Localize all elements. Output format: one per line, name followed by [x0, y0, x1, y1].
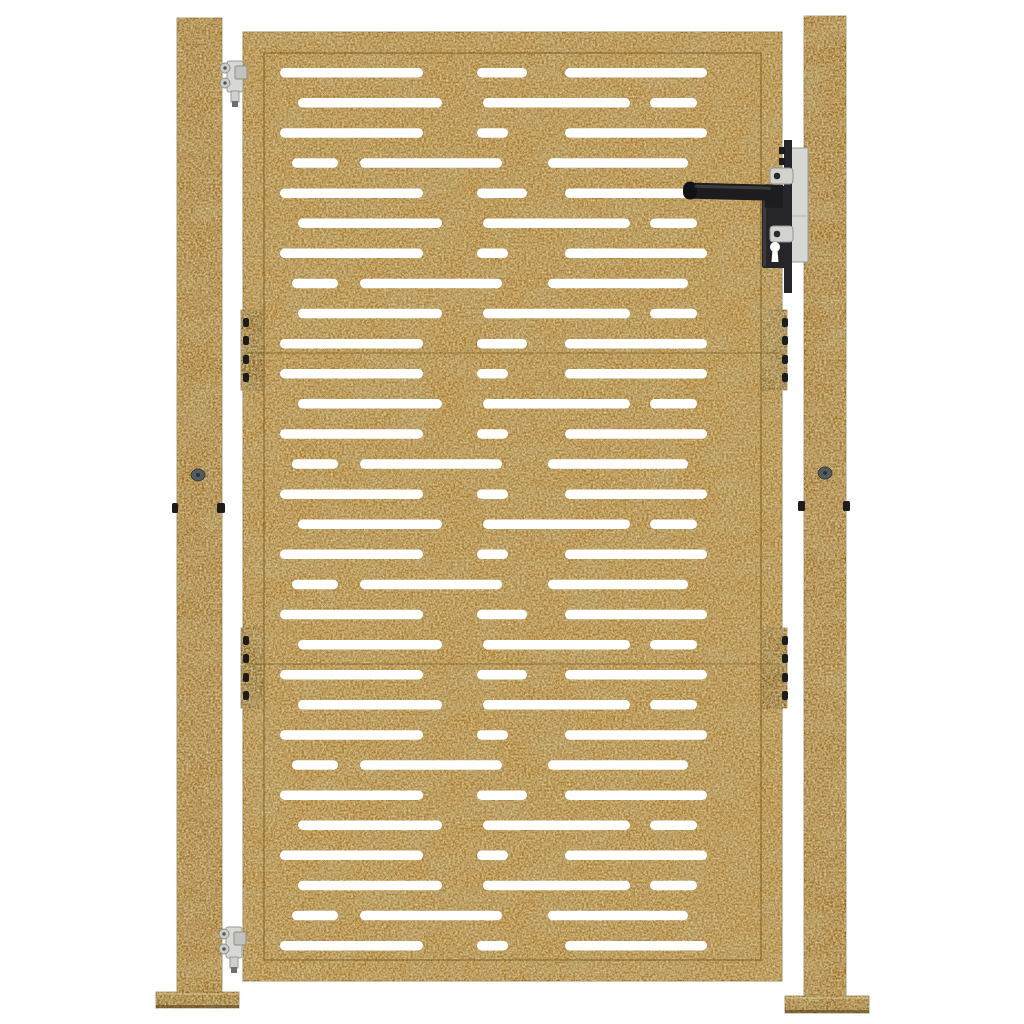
gate-slot-cutout: [565, 550, 707, 560]
gate-slot-cutout: [360, 279, 502, 289]
gate-slot-cutout: [477, 68, 527, 78]
bottom-hinge-bolt-center: [222, 932, 226, 936]
keyhole-tail: [772, 250, 779, 262]
right-fence-post-side-bolt: [798, 501, 805, 511]
gate-slot-cutout: [477, 188, 527, 198]
gate-slot-cutout: [280, 790, 423, 800]
gate-slot-cutout: [477, 790, 527, 800]
gate-slot-cutout: [650, 881, 697, 891]
gate-slot-cutout: [565, 730, 707, 740]
gate-slot-cutout: [292, 158, 338, 168]
gate-slot-cutout: [298, 700, 442, 710]
gate-slot-cutout: [477, 128, 508, 138]
gate-slot-cutout: [280, 188, 423, 198]
gate-slot-cutout: [477, 670, 527, 680]
gate-slot-cutout: [298, 309, 442, 319]
gate-slot-cutout: [360, 580, 502, 590]
gate-slot-cutout: [292, 580, 338, 590]
gate-slot-cutout: [483, 309, 630, 319]
left-fence-post-side-bolt: [172, 503, 178, 513]
edge-plate-bolt: [782, 336, 788, 345]
gate-slot-cutout: [280, 249, 423, 259]
gate-slot-cutout: [292, 279, 338, 289]
gate-slot-cutout: [477, 249, 508, 259]
gate-slot-cutout: [292, 459, 338, 469]
gate-slot-cutout: [650, 821, 697, 831]
gate-slot-cutout: [565, 68, 707, 78]
gate-slot-cutout: [298, 520, 442, 530]
gate-slot-cutout: [477, 429, 508, 439]
gate-slot-cutout: [565, 249, 707, 259]
gate-slot-cutout: [360, 760, 502, 770]
edge-plate-bolt: [243, 336, 249, 345]
gate-slot-cutout: [280, 489, 423, 499]
gate-slot-cutout: [280, 851, 423, 861]
gate-slot-cutout: [298, 219, 442, 229]
gate-slot-cutout: [292, 911, 338, 921]
gate-slot-cutout: [477, 339, 527, 349]
edge-plate-bolt: [782, 636, 788, 645]
gate-slot-cutout: [483, 640, 630, 650]
lever-tip: [683, 181, 697, 199]
edge-plate-bolt: [782, 673, 788, 682]
gate-slot-cutout: [565, 941, 707, 951]
gate-slot-cutout: [298, 881, 442, 891]
top-hinge-pin-foot: [232, 101, 238, 107]
gate-slot-cutout: [548, 911, 688, 921]
gate-panel: [243, 32, 782, 981]
gate-slot-cutout: [280, 369, 423, 379]
right-fence-post: [804, 16, 846, 1008]
gate-slot-cutout: [483, 700, 630, 710]
gate-slot-cutout: [565, 128, 707, 138]
top-hinge-bolt-center: [223, 66, 227, 70]
gate-slot-cutout: [477, 489, 508, 499]
right-fence-post-base-plate-shadow: [785, 1010, 869, 1013]
left-fence-post-base-plate-shadow: [156, 1005, 239, 1008]
right-fence-post-base-plate-highlight: [786, 997, 868, 999]
gate-slot-cutout: [650, 520, 697, 530]
lock-screw-tab: [770, 226, 793, 242]
gate-slot-cutout: [298, 399, 442, 409]
gate-slot-cutout: [477, 851, 508, 861]
lock-screw: [774, 231, 780, 237]
gate-slot-cutout: [360, 911, 502, 921]
edge-plate-bolt: [243, 636, 249, 645]
edge-plate-bolt: [782, 373, 788, 382]
gate-slot-cutout: [548, 580, 688, 590]
gate-slot-cutout: [565, 429, 707, 439]
gate-slot-cutout: [565, 851, 707, 861]
gate-slot-cutout: [477, 941, 508, 951]
left-fence-post-bolt-center: [196, 473, 200, 477]
gate-slot-cutout: [650, 309, 697, 319]
top-hinge-bolt-center: [223, 81, 227, 85]
edge-plate-bolt: [243, 691, 249, 700]
edge-plate-bolt: [243, 373, 249, 382]
edge-plate-bolt: [243, 654, 249, 663]
right-fence-post-bolt-center: [823, 471, 827, 475]
top-hinge-pin: [231, 91, 239, 102]
gate-slot-cutout: [650, 219, 697, 229]
gate-slot-cutout: [280, 670, 423, 680]
gate-slot-cutout: [360, 459, 502, 469]
left-fence-post-base-plate-highlight: [157, 993, 238, 995]
lock-bar-nub: [779, 147, 785, 154]
gate-slot-cutout: [650, 640, 697, 650]
gate-slot-cutout: [565, 610, 707, 620]
gate-slot-cutout: [477, 369, 508, 379]
bottom-hinge-bolt-center: [222, 947, 226, 951]
lock-bar-nub: [779, 158, 785, 165]
bottom-hinge-pin: [230, 957, 238, 968]
gate-slot-cutout: [565, 339, 707, 349]
lock-screw-tab: [770, 168, 793, 184]
bottom-hinge: [219, 927, 246, 973]
gate-slot-cutout: [483, 219, 630, 229]
edge-plate-bolt: [782, 355, 788, 364]
gate-slot-cutout: [565, 790, 707, 800]
gate-slot-cutout: [298, 821, 442, 831]
edge-plate-bolt: [243, 318, 249, 327]
gate-slot-cutout: [483, 881, 630, 891]
corten-gate-photo: [0, 0, 1024, 1024]
gate-slot-cutout: [483, 520, 630, 530]
gate-slot-cutout: [483, 399, 630, 409]
gate-slot-cutout: [280, 550, 423, 560]
product-photo-corten-gate: [0, 0, 1024, 1024]
gate-slot-cutout: [360, 158, 502, 168]
right-fence-post-side-bolt: [843, 501, 850, 511]
gate-slot-cutout: [280, 429, 423, 439]
gate-slot-cutout: [280, 610, 423, 620]
lock-screw: [774, 173, 780, 179]
gate-slot-cutout: [280, 339, 423, 349]
gate-slot-cutout: [292, 760, 338, 770]
left-fence-post: [177, 18, 222, 1000]
top-hinge-nut: [235, 66, 247, 79]
edge-plate-bolt: [782, 691, 788, 700]
gate-slot-cutout: [298, 640, 442, 650]
gate-slot-cutout: [483, 98, 630, 108]
gate-slot-cutout: [650, 700, 697, 710]
gate-slot-cutout: [565, 489, 707, 499]
edge-plate-bolt: [782, 318, 788, 327]
edge-plate-bolt: [243, 355, 249, 364]
gate-slot-cutout: [280, 68, 423, 78]
bottom-hinge-pin-foot: [231, 967, 237, 973]
gate-slot-cutout: [548, 158, 688, 168]
gate-slot-cutout: [650, 399, 697, 409]
edge-plate-bolt: [243, 673, 249, 682]
gate-slot-cutout: [280, 128, 423, 138]
gate-slot-cutout: [280, 941, 423, 951]
gate-slot-cutout: [565, 369, 707, 379]
bottom-hinge-nut: [234, 932, 246, 945]
gate-slot-cutout: [548, 279, 688, 289]
gate-slot-cutout: [477, 610, 527, 620]
gate-slot-cutout: [565, 670, 707, 680]
gate-slot-cutout: [548, 459, 688, 469]
edge-plate-bolt: [782, 654, 788, 663]
gate-slot-cutout: [298, 98, 442, 108]
left-fence-post-side-bolt: [217, 503, 225, 513]
gate-slot-cutout: [477, 550, 508, 560]
gate-slot-cutout: [477, 730, 508, 740]
gate-slot-cutout: [280, 730, 423, 740]
gate-slot-cutout: [650, 98, 697, 108]
gate-slot-cutout: [548, 760, 688, 770]
rust-steel-surfaces: [156, 16, 869, 1013]
gate-slot-cutout: [483, 821, 630, 831]
